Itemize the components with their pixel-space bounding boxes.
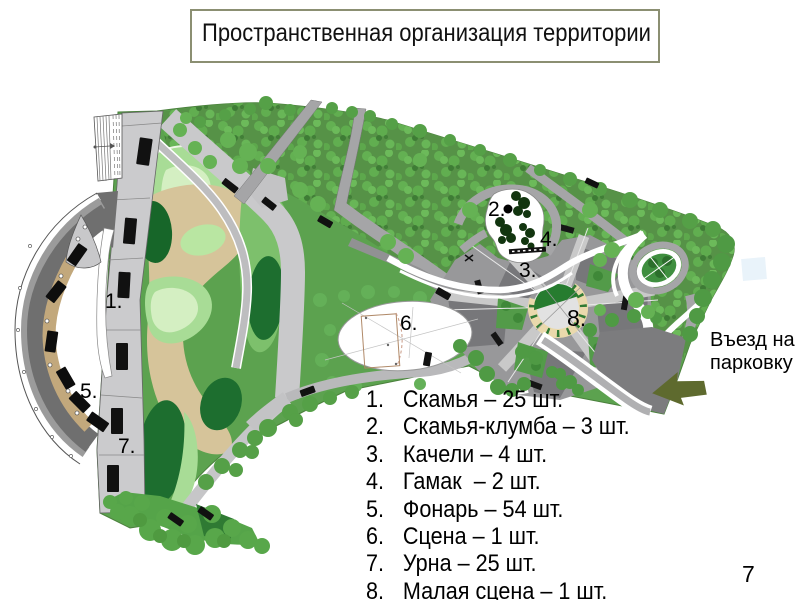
svg-text:7.: 7. (118, 435, 136, 458)
svg-text:4.: 4. (540, 228, 558, 251)
svg-text:8.: 8. (567, 305, 586, 331)
svg-text:5.: 5. (80, 380, 98, 403)
svg-text:6.: 6. (400, 312, 418, 335)
svg-text:1.: 1. (105, 290, 123, 313)
svg-text:2.: 2. (488, 198, 506, 221)
svg-text:3.: 3. (519, 259, 537, 282)
